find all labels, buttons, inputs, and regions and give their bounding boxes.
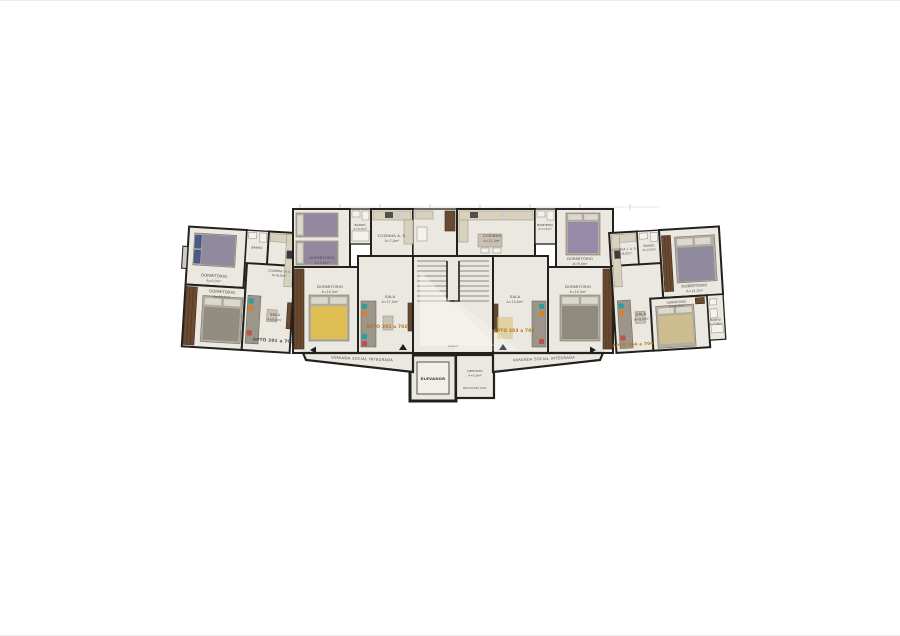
label-203-cozinha-name: COZINHA bbox=[483, 233, 502, 238]
label-202-banho-area: A=3,5m² bbox=[353, 227, 367, 231]
label-apto-203: APTO 203 a 703 bbox=[493, 328, 534, 334]
label-202-sala-area: A=17,0m² bbox=[382, 300, 400, 304]
label-203-banho-area: A=3,5m² bbox=[538, 227, 552, 231]
floor-plan: DORMITÓRIO A=9,0m² BANHO COZINHA / A.S. … bbox=[0, 1, 900, 636]
label-203-dorm1-area: A=9,0m² bbox=[573, 262, 588, 266]
label-apto-202: APTO 202 a 702 bbox=[366, 324, 407, 330]
page-canvas: DORMITÓRIO A=9,0m² BANHO COZINHA / A.S. … bbox=[0, 0, 900, 636]
label-203-dorm2-name: DORMITÓRIO bbox=[565, 284, 591, 289]
label-202-dorm2-area: A=10,5m² bbox=[322, 290, 340, 294]
label-202-sala-name: SALA bbox=[385, 294, 396, 299]
label-202-cozinha-area: A=7,0m² bbox=[385, 239, 400, 243]
varanda-left: VARANDA SOCIAL INTEGRADA bbox=[303, 353, 413, 372]
label-203-cozinha-area: A=11,0m² bbox=[484, 239, 502, 243]
label-203-sala-area: A=15,0m² bbox=[507, 300, 525, 304]
label-deposito-area: A=2,0m² bbox=[468, 374, 482, 378]
label-203-dorm1-name: DORMITÓRIO bbox=[567, 256, 593, 261]
label-203-sala-name: SALA bbox=[510, 294, 521, 299]
label-medidores: MEDIDORES ELET. bbox=[463, 386, 487, 390]
label-deposito-name: DEPÓSITO bbox=[467, 368, 483, 373]
varanda-right: VARANDA SOCIAL INTEGRADA bbox=[493, 353, 603, 372]
label-elevador: ELEVADOR bbox=[421, 376, 446, 381]
label-203-dorm2-area: A=10,5m² bbox=[570, 290, 588, 294]
unit-201: DORMITÓRIO A=9,0m² BANHO COZINHA / A.S. … bbox=[177, 226, 301, 353]
label-204-sala-name: SALA bbox=[636, 311, 647, 317]
label-202-dorm1-area: A=9,0m² bbox=[315, 261, 330, 265]
label-201-banho-name: BANHO bbox=[251, 245, 263, 250]
label-202-dorm2-name: DORMITÓRIO bbox=[317, 284, 343, 289]
label-201-sala-name: SALA bbox=[270, 312, 281, 318]
ac-ledge bbox=[182, 246, 188, 268]
unit-204: COZINHA + A. S. A=8,0m² BANHO A=2,0m² DO… bbox=[606, 226, 727, 353]
label-202-dorm1-name: DORMITÓRIO bbox=[309, 255, 335, 260]
label-202-cozinha-name: COZINHA A. S. bbox=[378, 233, 407, 238]
